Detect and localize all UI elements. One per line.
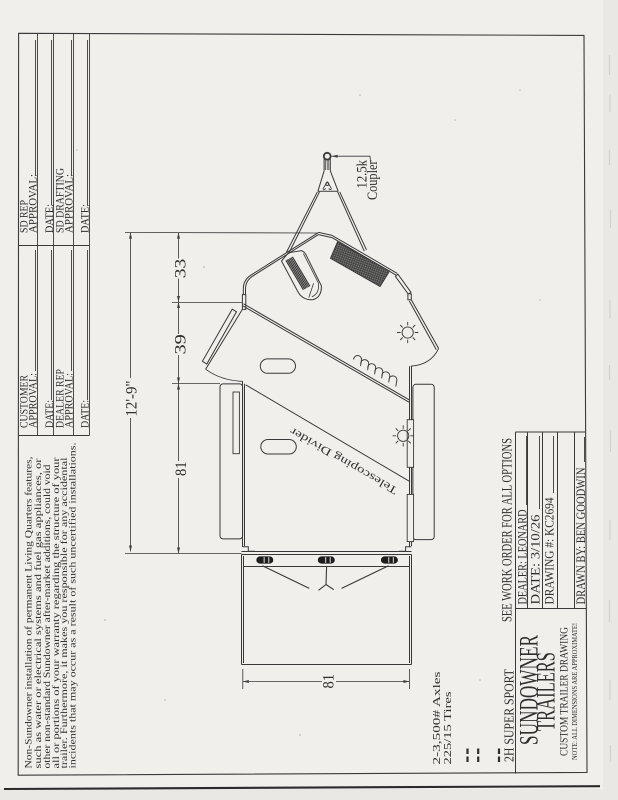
svg-text:DATE: 3/10/26: DATE: 3/10/26 bbox=[528, 514, 543, 605]
svg-text:APPROVAL:: APPROVAL: bbox=[64, 174, 76, 233]
svg-text:DRAWING #: KC2694: DRAWING #: KC2694 bbox=[542, 497, 557, 604]
svg-text:Coupler: Coupler bbox=[365, 160, 381, 200]
svg-text:81: 81 bbox=[321, 674, 338, 689]
svg-text:Non-Sundowner installation of: Non-Sundowner installation of permanent … bbox=[24, 457, 34, 769]
svg-text:incidents that may occur as a: incidents that may occur as a result of … bbox=[67, 443, 77, 769]
svg-text:CUSTOM TRAILER DRAWING: CUSTOM TRAILER DRAWING bbox=[557, 627, 571, 756]
svg-text:2-3,500# Axles: 2-3,500# Axles bbox=[432, 672, 443, 765]
svg-text:81: 81 bbox=[173, 462, 190, 477]
svg-text:33: 33 bbox=[173, 259, 190, 279]
svg-text:225/15 Tires: 225/15 Tires bbox=[443, 692, 454, 765]
svg-text:DRAWN BY: BEN GOODWIN: DRAWN BY: BEN GOODWIN bbox=[573, 467, 588, 604]
svg-text:39: 39 bbox=[173, 334, 190, 354]
svg-text:DATE:: DATE: bbox=[80, 400, 92, 428]
svg-text:APPROVAL:: APPROVAL: bbox=[28, 174, 40, 233]
svg-text:SEE WORK ORDER FOR ALL OPTIONS: SEE WORK ORDER FOR ALL OPTIONS bbox=[500, 438, 516, 622]
svg-text:12'-9": 12'-9" bbox=[124, 381, 141, 417]
svg-text:APPROVAL:: APPROVAL: bbox=[28, 373, 40, 428]
svg-text:DATE:: DATE: bbox=[80, 204, 92, 233]
svg-text:APPROVAL:: APPROVAL: bbox=[64, 373, 76, 428]
svg-text:NOTE: ALL DIMENSIONS ARE APPRO: NOTE: ALL DIMENSIONS ARE APPROXIMATE! bbox=[570, 623, 579, 760]
